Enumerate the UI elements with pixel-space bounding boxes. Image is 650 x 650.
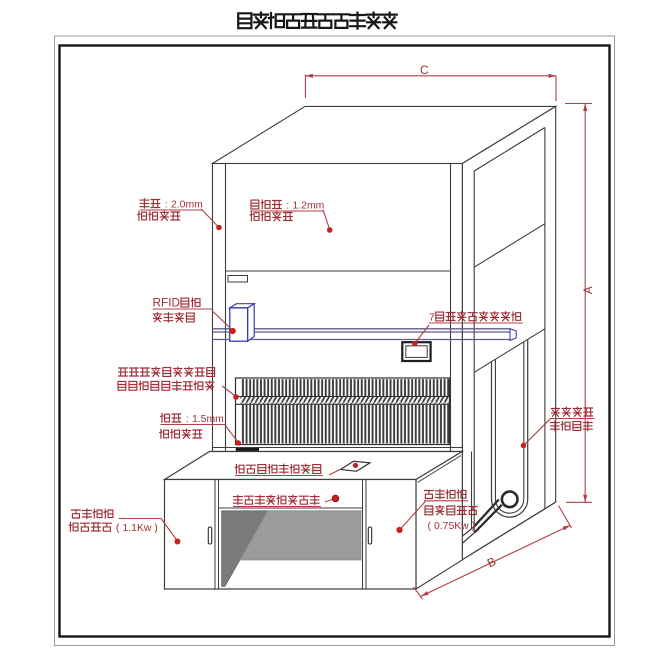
svg-text:RFID: RFID xyxy=(153,296,181,310)
svg-text:1.5mm: 1.5mm xyxy=(192,414,224,425)
svg-text:): ) xyxy=(472,521,475,532)
svg-text:): ) xyxy=(154,523,157,534)
svg-text::: : xyxy=(286,201,289,212)
svg-text:0.75Kw: 0.75Kw xyxy=(434,521,469,532)
svg-text::: : xyxy=(186,414,189,425)
svg-text:1.1Kw: 1.1Kw xyxy=(123,523,152,534)
svg-text:C: C xyxy=(420,63,429,77)
svg-text:2.0mm: 2.0mm xyxy=(171,200,203,211)
svg-text:7: 7 xyxy=(429,313,435,324)
svg-text:A: A xyxy=(583,286,595,294)
svg-text::: : xyxy=(165,200,168,211)
svg-text:(: ( xyxy=(428,521,432,532)
svg-text:1.2mm: 1.2mm xyxy=(293,201,325,212)
svg-text:(: ( xyxy=(116,523,120,534)
